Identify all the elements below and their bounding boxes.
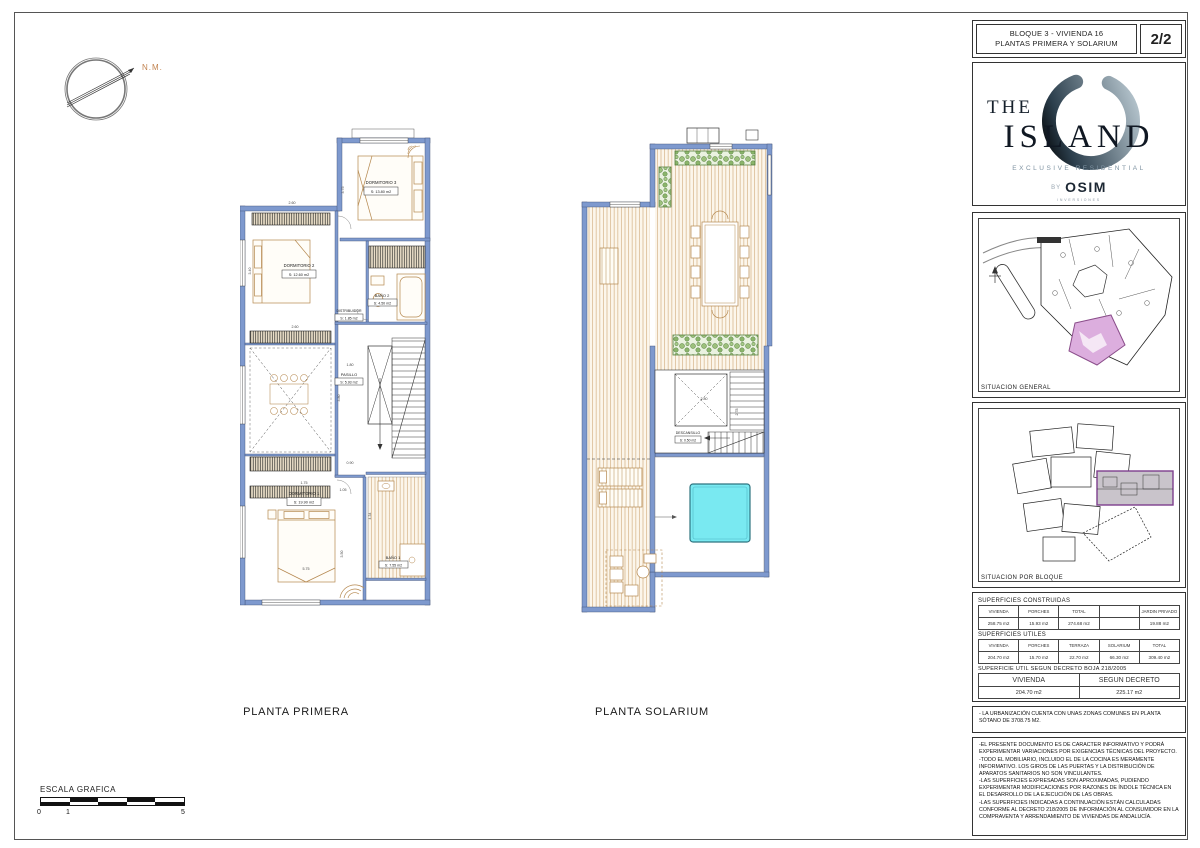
ghost-dining-set (270, 375, 308, 415)
col-header (1099, 606, 1139, 618)
situacion-bloque-label: SITUACION POR BLOQUE (981, 575, 1063, 581)
col-header: SEGUN DECRETO (1079, 674, 1180, 687)
situacion-general-map-frame (978, 218, 1180, 392)
compass-inner-circle (67, 60, 125, 118)
cell-value: 258.75 m2 (979, 618, 1019, 630)
dim: 0.90 (347, 461, 354, 465)
room-area: S: 19.90 m2 (294, 501, 314, 505)
logo-tagline: EXCLUSIVE RESIDENTIAL (973, 165, 1185, 172)
col-header: JARDIN PRIVADO (1139, 606, 1179, 618)
door-arc (338, 216, 351, 229)
room-name: DORMITORIO 2 (284, 263, 315, 268)
room-area: S: 7.55 m2 (385, 564, 402, 568)
dim: 3.75 (341, 187, 345, 194)
decreto-title: SUPERFICIE UTIL SEGUN DECRETO BOJA 218/2… (978, 666, 1180, 672)
room-area: S: 5.93 m2 (340, 381, 357, 385)
decreto-table: VIVIENDA SEGUN DECRETO 204.70 m2 225.17 … (978, 673, 1180, 699)
dim: 2.80 (701, 397, 708, 401)
logo-brand: OSIM (1065, 179, 1107, 195)
logo-by: BY (1051, 185, 1061, 191)
dim: 1.05 (340, 488, 347, 492)
dim: 2.60 (292, 325, 299, 329)
cell-value: 22.70 m2 (1059, 652, 1099, 664)
col-header: PORCHES (1019, 640, 1059, 652)
wardrobe-distribuidor (369, 246, 425, 268)
compass-label: N.M. (142, 63, 163, 72)
cell-value: 274.68 m2 (1059, 618, 1099, 630)
room-name: BAÑO 1 (386, 555, 401, 560)
surfaces-panel: SUPERFICIES CONSTRUIDAS VIVIENDA PORCHES… (972, 592, 1186, 702)
room-name: BAÑO 2 (375, 293, 390, 298)
col-header: VIVIENDA (979, 674, 1080, 687)
disclaimer-note: -EL PRESENTE DOCUMENTO ES DE CARACTER IN… (972, 737, 1186, 836)
title-block: BLOQUE 3 - VIVIENDA 16 PLANTAS PRIMERA Y… (972, 20, 1186, 58)
logo-block: THE ISLAND EXCLUSIVE RESIDENTIAL BYOSIM … (972, 62, 1186, 206)
situacion-bloque-map-frame (978, 408, 1180, 582)
dim: 1.80 (347, 363, 354, 367)
scale-tick-1: 1 (66, 809, 70, 816)
note-line: -EL PRESENTE DOCUMENTO ES DE CARACTER IN… (979, 742, 1179, 756)
room-name: PASILLO (341, 372, 357, 377)
pool-room (655, 457, 764, 572)
bench (600, 248, 618, 284)
col-header: VIVIENDA (979, 606, 1019, 618)
note-line: -TODO EL MOBILIARIO, INCLUIDO EL DE LA C… (979, 757, 1179, 778)
room-name: DESCANSILLO (676, 431, 701, 435)
logo-byline: BYOSIM INVERSIONES (973, 179, 1185, 202)
cell-value: 204.70 m2 (979, 652, 1019, 664)
title-line1: BLOQUE 3 - VIVIENDA 16 (1010, 29, 1104, 39)
situacion-general-map (979, 219, 1179, 391)
wardrobe-strip-lower (250, 457, 331, 471)
logo-word-island: ISLAND (973, 119, 1185, 156)
utiles-table: VIVIENDA PORCHES TERRAZA SOLARIUM TOTAL … (978, 639, 1180, 664)
scale-tick-5: 5 (181, 809, 185, 816)
solarium-staircase (655, 370, 764, 453)
situacion-general-panel: SITUACION GENERAL (972, 212, 1186, 398)
drawing-title: BLOQUE 3 - VIVIENDA 16 PLANTAS PRIMERA Y… (976, 24, 1137, 54)
room-name: DORMITORIO 3 (366, 180, 397, 185)
col-header: PORCHES (1019, 606, 1059, 618)
compass-outer-circle (65, 58, 127, 120)
cell-value: 15.93 m2 (1019, 618, 1059, 630)
dim: 2.60 (289, 201, 296, 205)
entry-chair (340, 585, 364, 598)
col-header: TOTAL (1139, 640, 1179, 652)
void-open-to-below (250, 348, 331, 452)
cell-value: 66.30 m2 (1099, 652, 1139, 664)
note-line: -LAS SUPERFICIES EXPRESADAS SON APROXIMA… (979, 778, 1179, 799)
scale-bar-title: ESCALA GRAFICA (40, 785, 116, 794)
room-area: S: 4.50 m2 (374, 302, 391, 306)
room-name: DORMITORIO 1 (289, 491, 320, 496)
room-area: S: 13.80 m2 (371, 190, 391, 194)
construidas-table: VIVIENDA PORCHES TOTAL JARDIN PRIVADO 25… (978, 605, 1180, 630)
bed-dormitorio-1 (268, 510, 335, 582)
col-header: TOTAL (1059, 606, 1099, 618)
roof-vent (687, 128, 719, 143)
room-area: S: 1.85 m2 (340, 317, 357, 321)
cell-value: 15.70 m2 (1019, 652, 1059, 664)
compass-needle (67, 68, 134, 107)
title-line2: PLANTAS PRIMERA Y SOLARIUM (995, 39, 1118, 49)
room-name: DISTRIBUIDOR (336, 309, 362, 313)
planta-solarium-caption: PLANTA SOLARIUM (562, 706, 742, 718)
cell-value: 309.40 m2 (1139, 652, 1179, 664)
planta-primera-caption: PLANTA PRIMERA (206, 706, 386, 718)
situacion-bloque-panel: SITUACION POR BLOQUE (972, 402, 1186, 588)
dim: 1.75 (301, 481, 308, 485)
utiles-title: SUPERFICIES UTILES (978, 632, 1180, 638)
room-area: S: 0.50 m2 (680, 439, 697, 443)
dim: 5.75 (303, 567, 310, 571)
page-number: 2/2 (1140, 24, 1182, 54)
logo-brand-sub: INVERSIONES (973, 198, 1185, 202)
dim: 4.34 (368, 513, 372, 520)
logo-word-the: THE (987, 97, 1033, 119)
note-line: -LAS SUPERFICIES INDICADAS A CONTINUACIÓ… (979, 800, 1179, 821)
cell-value: 225.17 m2 (1079, 687, 1180, 699)
graphic-scale-bar (40, 797, 185, 806)
north-compass: N.M. (52, 48, 182, 132)
wardrobe-dormitorio-2 (252, 213, 330, 225)
dim: 3.80 (337, 395, 341, 402)
scale-tick-0: 0 (37, 809, 41, 816)
zonas-comunes-note: - LA URBANIZACIÓN CUENTA CON UNAS ZONAS … (972, 706, 1186, 733)
roof-vent-small (746, 130, 758, 140)
wardrobe-strip-upper (250, 331, 331, 343)
highlighted-block (1097, 471, 1173, 505)
plunge-pool (690, 484, 750, 542)
staircase (368, 338, 425, 458)
room-area: S: 12.60 m2 (289, 273, 309, 277)
dim: 2.78 (735, 409, 739, 416)
cell-value: 19.88 m2 (1139, 618, 1179, 630)
dim: 3.40 (248, 268, 252, 275)
construidas-title: SUPERFICIES CONSTRUIDAS (978, 598, 1180, 604)
col-header: VIVIENDA (979, 640, 1019, 652)
cell-value: 204.70 m2 (979, 687, 1080, 699)
situacion-general-label: SITUACION GENERAL (981, 385, 1051, 391)
cell-value (1099, 618, 1139, 630)
col-header: SOLARIUM (1099, 640, 1139, 652)
planta-primera-drawing: DORMITORIO 3 S: 13.80 m2 DORMITORIO 2 S:… (240, 128, 435, 613)
situacion-bloque-map (979, 409, 1179, 581)
dim: 3.50 (340, 551, 344, 558)
col-header: TERRAZA (1059, 640, 1099, 652)
note-text: - LA URBANIZACIÓN CUENTA CON UNAS ZONAS … (979, 711, 1179, 725)
planta-solarium-drawing: DESCANSILLO S: 0.50 m2 2.80 2.78 (580, 122, 795, 627)
